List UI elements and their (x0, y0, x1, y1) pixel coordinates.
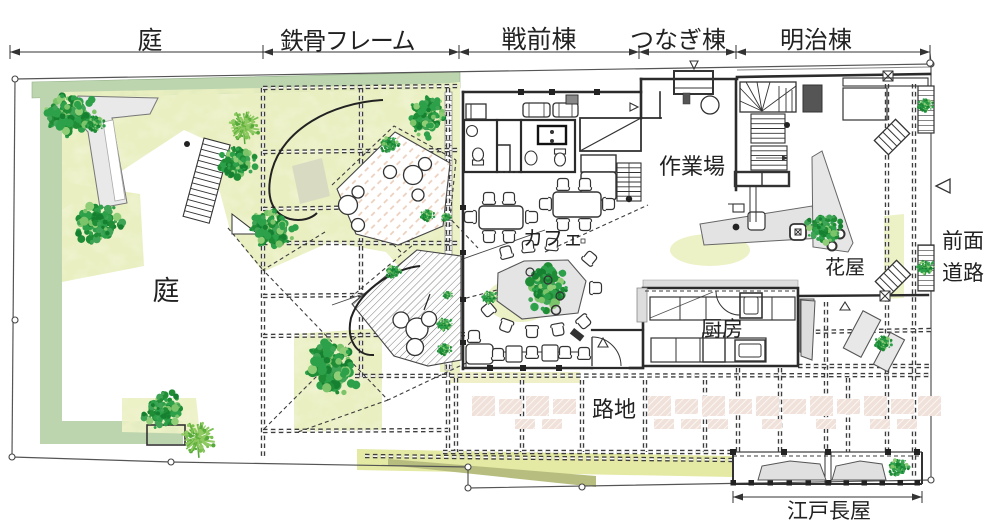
svg-text:庭: 庭 (153, 276, 180, 306)
svg-text:道路: 道路 (942, 262, 984, 285)
svg-text:作業場: 作業場 (659, 154, 725, 179)
svg-text:花屋: 花屋 (825, 256, 865, 279)
svg-text:厨房: 厨房 (701, 318, 743, 341)
svg-text:鉄骨フレーム: 鉄骨フレーム (280, 28, 415, 55)
svg-text:路地: 路地 (592, 397, 636, 422)
svg-text:庭: 庭 (137, 27, 162, 55)
svg-text:明治棟: 明治棟 (780, 27, 852, 54)
svg-text:前面: 前面 (942, 230, 984, 253)
svg-text:戦前棟: 戦前棟 (501, 26, 576, 54)
svg-text:江戸長屋: 江戸長屋 (787, 500, 871, 523)
svg-text:カフェ: カフェ (523, 228, 583, 250)
svg-text:つなぎ棟: つなぎ棟 (630, 27, 726, 54)
